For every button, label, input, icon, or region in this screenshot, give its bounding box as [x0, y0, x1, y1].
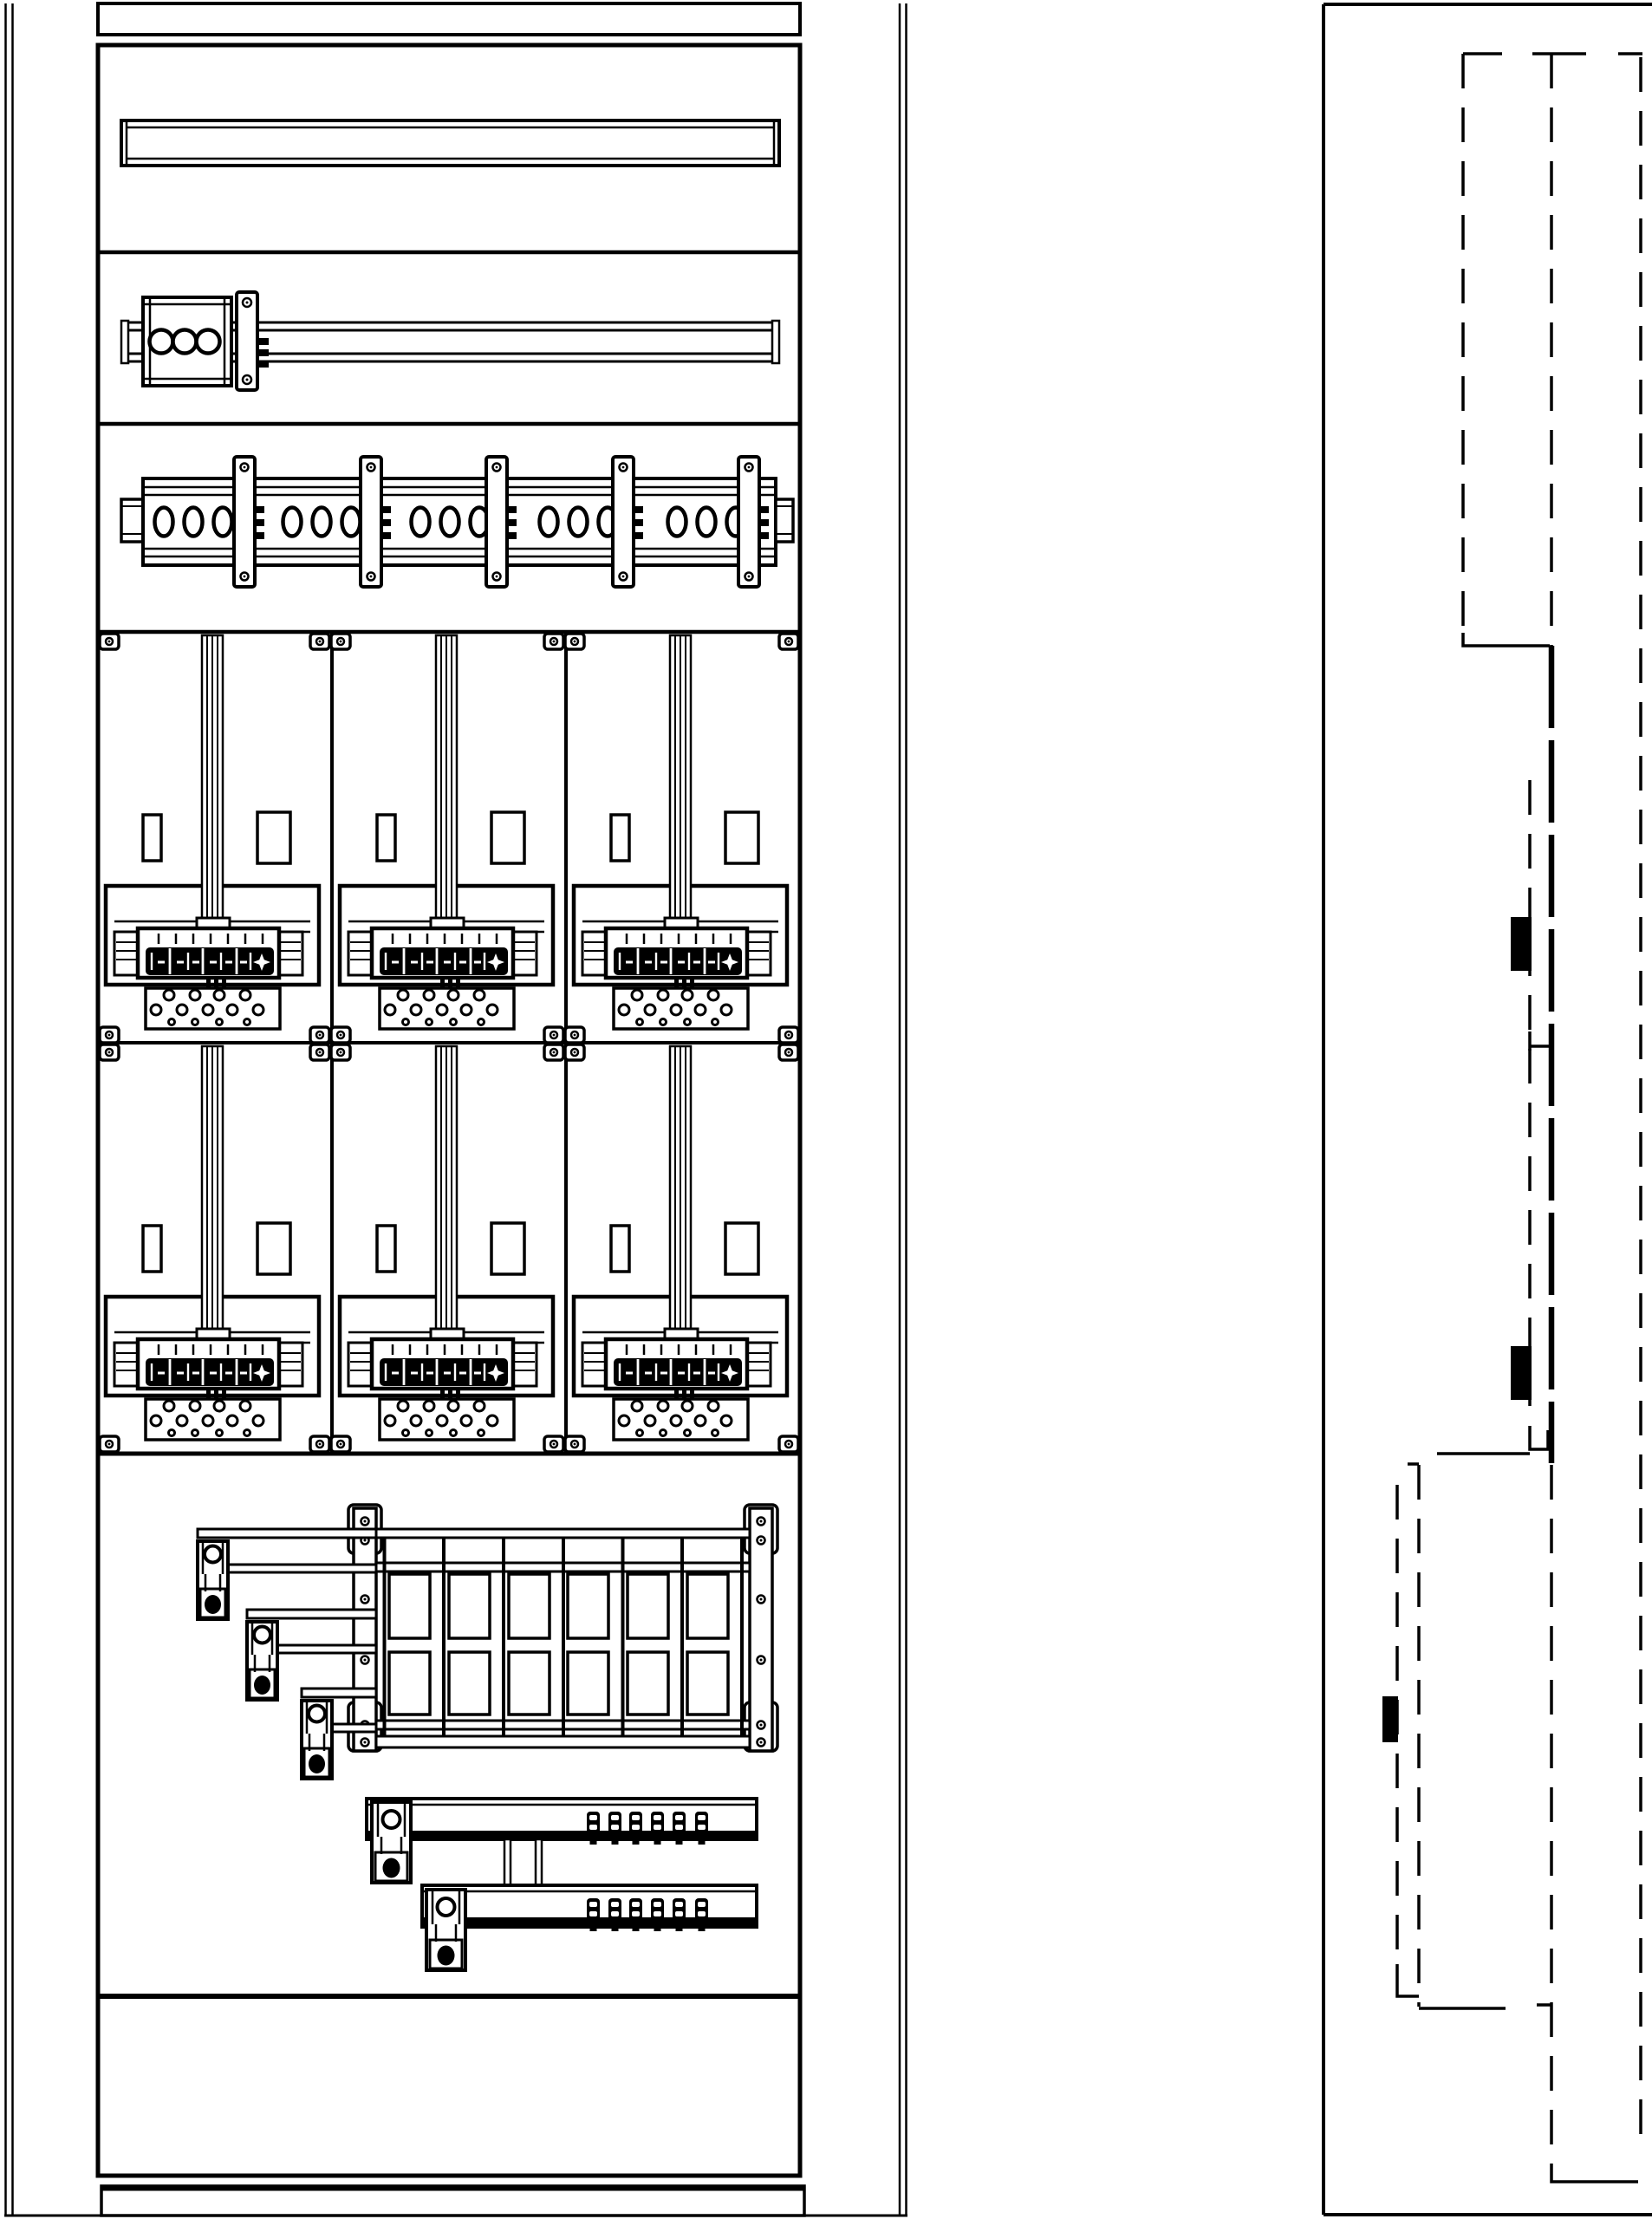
- screw-tab: [779, 1027, 798, 1043]
- header-strip: [98, 3, 800, 35]
- distribution-body-side: [1382, 1696, 1398, 1742]
- lug-rail-top: [198, 1529, 376, 1538]
- screw-tab: [100, 634, 119, 649]
- rail-lug-clamp: [426, 1890, 465, 1970]
- feeder-lug-clamp: [247, 1622, 277, 1700]
- screw-tab: [565, 1027, 584, 1043]
- rail-screw-dot: [364, 1741, 367, 1744]
- plinth-strip: [101, 2186, 804, 2216]
- screw-tab: [544, 1436, 563, 1452]
- terminal-hole: [173, 330, 197, 354]
- rail-lug-clamp: [372, 1802, 411, 1883]
- lug-rail-bottom: [228, 1565, 376, 1572]
- din-terminal-block: [143, 297, 231, 386]
- screw-tab: [331, 634, 350, 649]
- lug-rail-bottom: [277, 1645, 376, 1653]
- rail-screw-dot: [760, 1520, 763, 1523]
- screw-tab: [310, 634, 329, 649]
- feeder-lug-clamp: [302, 1701, 332, 1779]
- screw-tab: [779, 634, 798, 649]
- meter-body-side: [1511, 1346, 1532, 1400]
- top-slotted-rail: [121, 120, 779, 166]
- screw-tab: [779, 1044, 798, 1060]
- rail-screw-dot: [760, 1724, 763, 1727]
- screw-tab: [544, 1027, 563, 1043]
- rail-screw-dot: [364, 1598, 367, 1601]
- screw-tab: [310, 1027, 329, 1043]
- screw-tab: [565, 1436, 584, 1452]
- lug-rail-top: [247, 1610, 376, 1618]
- rail-screw-dot: [364, 1520, 367, 1523]
- rail-screw-dot: [760, 1539, 763, 1542]
- technical-drawing-canvas: [0, 0, 1652, 2219]
- side-elevation-view: [1324, 4, 1652, 2215]
- screw-tab: [100, 1044, 119, 1060]
- screw-tab: [565, 1044, 584, 1060]
- screw-tab: [565, 634, 584, 649]
- screw-tab: [100, 1436, 119, 1452]
- screw-tab: [100, 1027, 119, 1043]
- terminal-hole: [197, 330, 220, 354]
- side-view-meter-bodies: [1382, 917, 1532, 1742]
- rail-screw-dot: [760, 1659, 763, 1662]
- screw-tab: [544, 1044, 563, 1060]
- screw-tab: [544, 634, 563, 649]
- rail-screw-dot: [364, 1539, 367, 1542]
- feeder-lug-clamp: [198, 1541, 228, 1619]
- lug-rail-top: [302, 1689, 376, 1697]
- screw-tab: [779, 1436, 798, 1452]
- rail-screw-dot: [760, 1598, 763, 1601]
- screw-tab: [310, 1044, 329, 1060]
- cad-drawing: [0, 0, 1652, 2219]
- rail-screw-dot: [364, 1659, 367, 1662]
- front-elevation-view: [4, 3, 907, 2216]
- side-profile-steps: [1397, 633, 1638, 2182]
- screw-tab: [310, 1436, 329, 1452]
- screw-tab: [331, 1436, 350, 1452]
- hidden-edges: [1397, 54, 1642, 2167]
- screw-tab: [331, 1027, 350, 1043]
- lug-rail-bottom: [332, 1724, 376, 1732]
- terminal-hole: [150, 330, 173, 354]
- screw-tab: [331, 1044, 350, 1060]
- rail-screw-dot: [760, 1741, 763, 1744]
- meter-body-side: [1511, 917, 1532, 971]
